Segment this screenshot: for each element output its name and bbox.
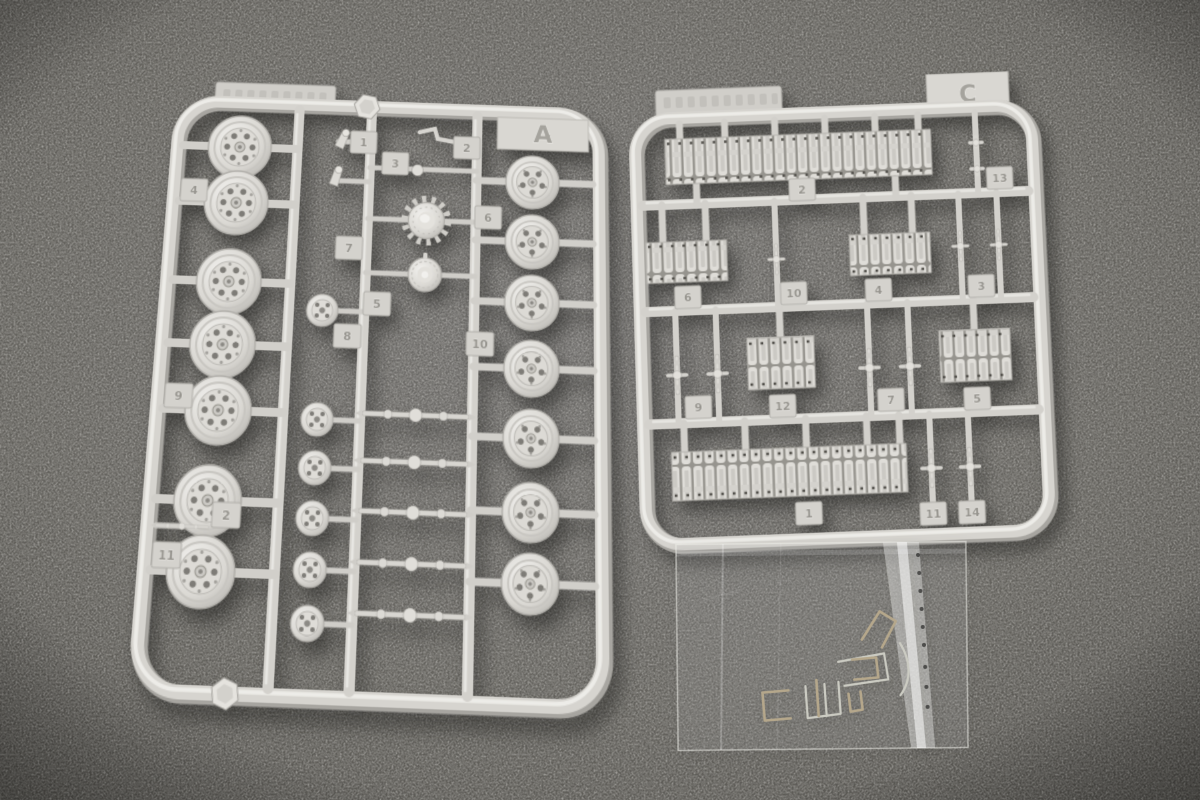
part-number: 12 [775,399,791,413]
part-number: 1 [805,507,813,521]
idler-drum [408,252,442,292]
part-number: 2 [463,141,471,154]
sprue-a-letter-tab: A [497,117,588,152]
part-number: 10 [472,337,489,352]
part-number: 9 [694,401,702,415]
part-number: 5 [973,392,981,406]
part-number: 3 [391,157,399,171]
track-section [747,336,816,390]
part-number: 4 [874,283,883,297]
part-number: 14 [964,505,981,519]
part-number: 2 [222,508,231,524]
part-number: 11 [925,507,941,521]
road-wheels-medium [501,155,559,616]
parts-bag [671,538,973,756]
track-section [646,240,728,284]
track-section [849,232,931,276]
part-number: 6 [684,291,693,305]
part-number: 6 [484,211,492,225]
sprue-letter: A [533,120,553,149]
part-number: 7 [887,393,895,407]
part-number: 9 [174,388,183,403]
part-number: 2 [798,183,806,196]
part-number: 7 [345,241,353,255]
sprue-gate [206,675,244,714]
track-run-long-bottom [671,443,908,501]
drive-sprocket [404,198,448,243]
track-run-long-top [665,129,932,184]
part-number: 4 [190,183,199,197]
sprue-a: A [114,78,621,761]
photo-stage: A [0,0,1200,800]
part-number: 1 [360,136,368,149]
wheels-small [290,294,339,642]
part-number: 13 [992,171,1008,185]
part-number: 3 [977,279,985,293]
track-section [939,329,1012,383]
sprue-c: C [623,70,1065,565]
part-number: 5 [373,297,382,311]
part-number: 11 [158,547,176,563]
part-number: 8 [343,329,352,343]
part-number: 10 [786,287,802,301]
